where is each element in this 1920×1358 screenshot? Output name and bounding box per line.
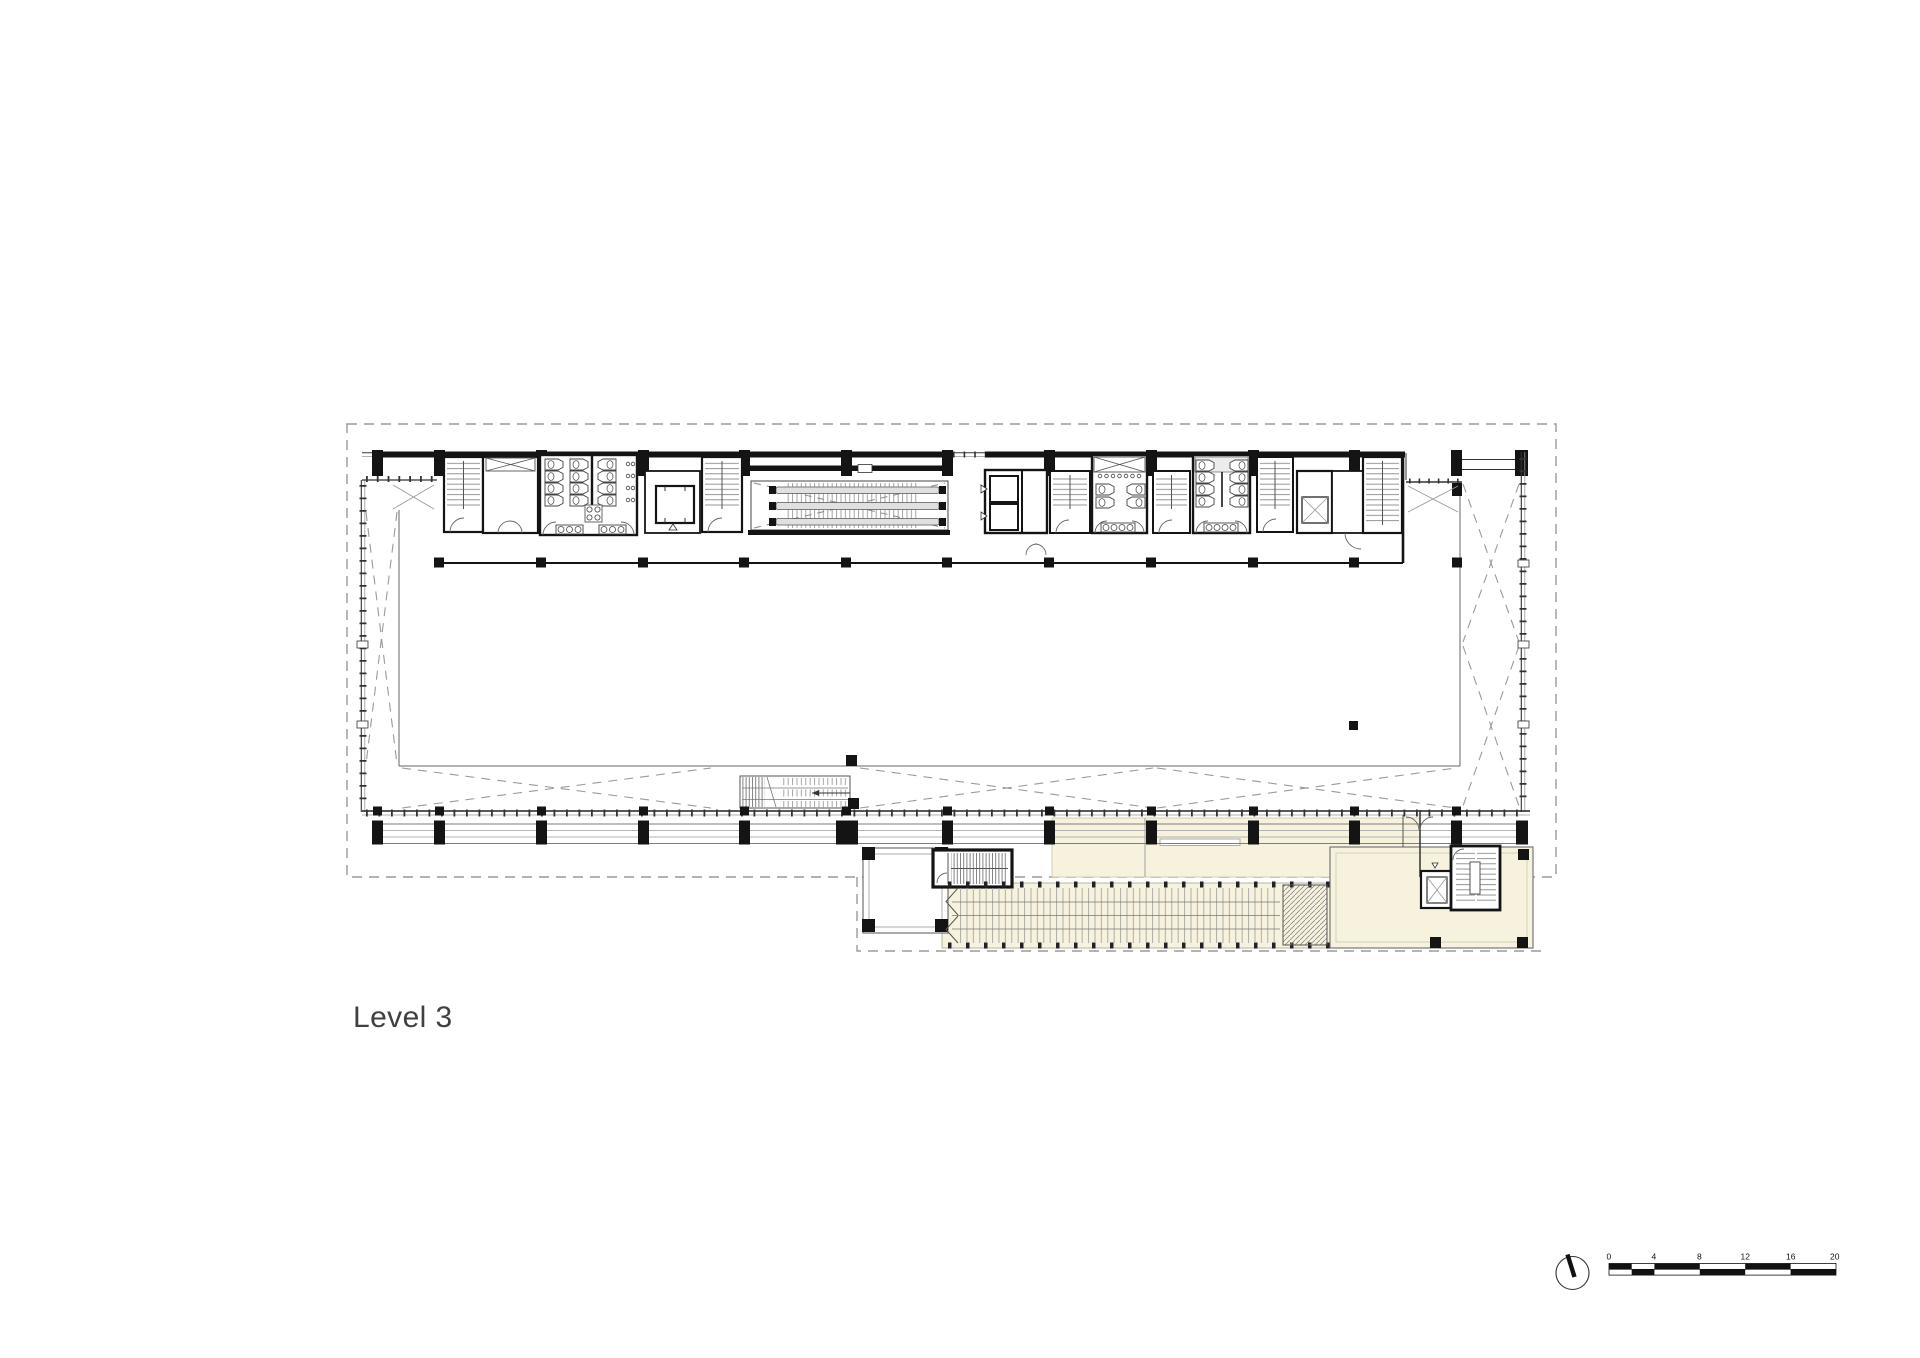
stair-3 xyxy=(1050,471,1090,533)
west-terrace xyxy=(393,485,434,509)
elevator-lobby xyxy=(645,471,700,533)
svg-text:12: 12 xyxy=(1741,1252,1751,1262)
north-arrow-icon xyxy=(1556,1255,1589,1290)
stair-2 xyxy=(702,457,742,532)
toilet-room-east xyxy=(1193,455,1250,533)
escalator-handrails xyxy=(776,487,939,525)
stair-6 xyxy=(1363,457,1402,533)
east-curtain-wall xyxy=(1518,452,1529,812)
elevator-1 xyxy=(656,486,694,523)
annex-counter xyxy=(1160,839,1240,846)
elevator-3 xyxy=(990,504,1018,530)
stair-1 xyxy=(444,457,483,532)
stair-hatch-landing xyxy=(1283,885,1327,945)
toilet-room-center xyxy=(1092,455,1147,533)
svg-text:0: 0 xyxy=(1607,1252,1612,1262)
escalator-pair xyxy=(748,481,950,535)
shaft-room xyxy=(483,457,538,533)
level-3-floor-plan: 0 4 8 12 16 20 xyxy=(0,0,1920,1358)
service-door xyxy=(1026,544,1037,555)
south-curtain-wall xyxy=(362,807,1530,816)
svg-text:4: 4 xyxy=(1652,1252,1657,1262)
annex-stair-east xyxy=(1451,846,1500,910)
west-curtain-wall xyxy=(357,479,437,812)
annex-stair-core xyxy=(933,850,1012,887)
svg-text:20: 20 xyxy=(1830,1252,1840,1262)
svg-text:8: 8 xyxy=(1697,1252,1702,1262)
store-room xyxy=(1332,471,1363,549)
annex-grand-stair xyxy=(946,885,1335,946)
svg-text:16: 16 xyxy=(1786,1252,1796,1262)
elevator-bank xyxy=(981,470,1047,555)
stair-4 xyxy=(1153,471,1190,533)
elevator-2 xyxy=(990,476,1018,502)
stair-5 xyxy=(1257,457,1293,532)
toilet-room-west xyxy=(540,455,637,535)
scale-bar: 0 4 8 12 16 20 xyxy=(1607,1252,1840,1276)
floor-plan-canvas: 0 4 8 12 16 20 Level 3 xyxy=(0,0,1920,1358)
void-stair xyxy=(740,755,859,809)
store-door xyxy=(1345,533,1361,549)
floor-level-label: Level 3 xyxy=(353,1001,453,1035)
scale-bar-labels: 0 4 8 12 16 20 xyxy=(1607,1252,1840,1262)
free-column xyxy=(1349,721,1358,730)
colonnade xyxy=(372,821,1528,845)
